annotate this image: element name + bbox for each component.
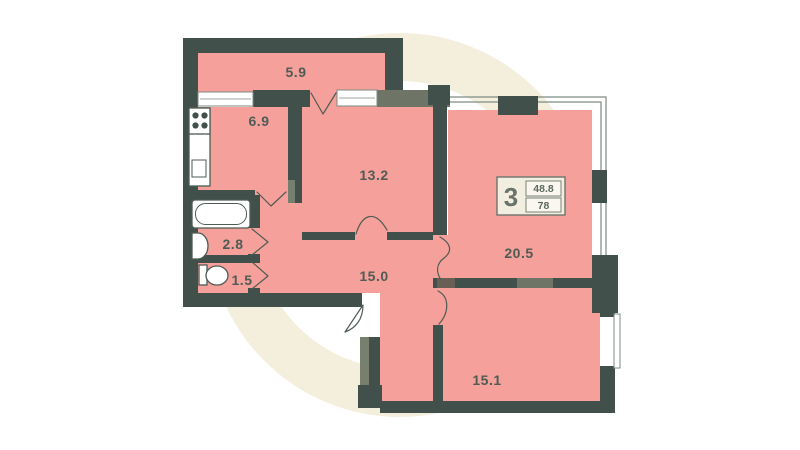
wall-top-balcony: [183, 38, 403, 53]
wall-bottom-left: [183, 293, 362, 307]
floor-plan: 5.9 6.9 13.2 2.8 1.5 15.0 20.5 15.1 3 48…: [0, 0, 800, 450]
room-label-living: 20.5: [504, 245, 533, 261]
wall-segment: [387, 232, 433, 240]
stove-icon: [189, 108, 210, 134]
wall-segment-olive: [517, 278, 553, 288]
wall-entry-bottom: [358, 385, 382, 408]
plan-badge: 3 48.8 78: [497, 177, 565, 215]
room-label-toilet: 1.5: [232, 272, 253, 288]
wall-entry-step-olive: [360, 337, 369, 385]
room-label-balcony: 5.9: [286, 64, 307, 80]
room-hallway: [260, 203, 437, 293]
wall-segment-right: [592, 170, 607, 203]
badge-area-bottom: 78: [538, 200, 550, 212]
stove-burner-icon: [201, 112, 207, 118]
wall-bedroom1-living: [433, 92, 447, 235]
wall-bedroom2-right: [600, 283, 615, 317]
stove-burner-icon: [201, 122, 207, 128]
toilet-bowl-icon: [206, 266, 228, 285]
wall-segment: [248, 254, 260, 262]
room-label-hallway: 15.0: [359, 268, 388, 284]
badge-rooms-count: 3: [504, 182, 518, 212]
floor-plan-page: 5.9 6.9 13.2 2.8 1.5 15.0 20.5 15.1 3 48…: [0, 0, 800, 450]
wall-segment-brown: [437, 278, 455, 288]
wall-segment-olive: [288, 180, 295, 203]
wall-entry-step: [369, 337, 380, 385]
stove-burner-icon: [192, 112, 198, 118]
room-hallway-corridor: [380, 293, 437, 403]
room-label-kitchen: 6.9: [249, 113, 270, 129]
room-label-bedroom-2: 15.1: [472, 372, 501, 388]
stove-burner-icon: [192, 122, 198, 128]
door-entry: [345, 305, 363, 332]
wall-bedroom2-left: [433, 325, 443, 402]
wall-segment: [302, 232, 355, 240]
wall-segment: [248, 288, 260, 307]
washbasin-icon: [192, 233, 208, 259]
room-label-bathroom: 2.8: [223, 236, 244, 252]
wall-bottom: [380, 401, 615, 413]
badge-area-top: 48.8: [533, 183, 554, 195]
door-gap-bedroom-1: [355, 232, 387, 240]
room-label-bedroom-1: 13.2: [359, 167, 388, 183]
window-bedroom-2: [614, 314, 620, 368]
room-bedroom-2: [443, 288, 600, 402]
wall-segment-top-living: [498, 96, 538, 115]
